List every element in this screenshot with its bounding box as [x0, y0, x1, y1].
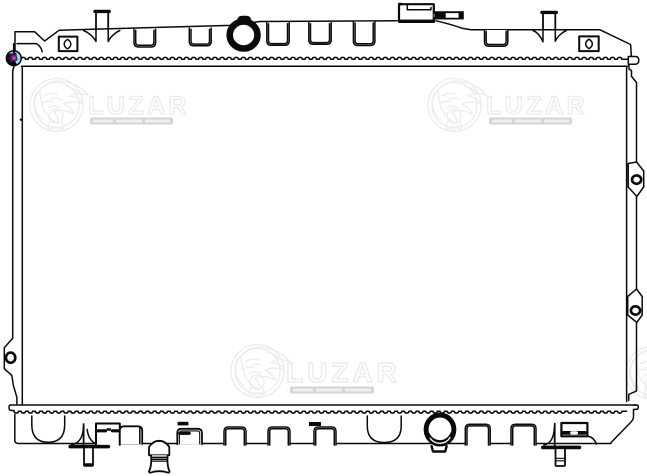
svg-text:LUZAR: LUZAR — [286, 357, 401, 388]
svg-text:LUZAR: LUZAR — [486, 92, 588, 120]
svg-text:LUZAR: LUZAR — [88, 92, 190, 120]
